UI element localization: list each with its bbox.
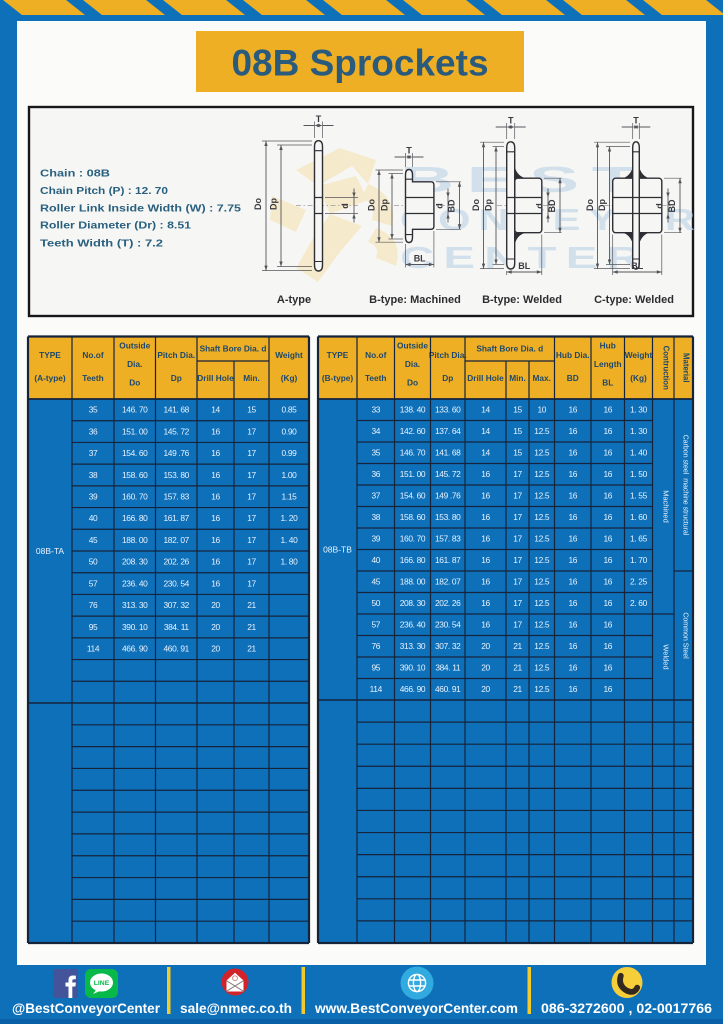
svg-text:36: 36 (89, 426, 98, 436)
svg-text:d: d (340, 203, 350, 209)
svg-text:Teeth: Teeth (365, 373, 387, 383)
svg-text:38: 38 (371, 512, 380, 522)
svg-text:Roller Diameter (Dr) : 8.51: Roller Diameter (Dr) : 8.51 (40, 221, 191, 232)
svg-text:Min.: Min. (243, 373, 260, 383)
svg-text:12.5: 12.5 (534, 684, 550, 694)
svg-text:Common Steel: Common Steel (682, 612, 689, 659)
svg-text:166. 80: 166. 80 (400, 555, 426, 565)
svg-text:www.BestConveyorCenter.com: www.BestConveyorCenter.com (314, 1000, 518, 1016)
svg-text:Hub Dia.: Hub Dia. (556, 350, 590, 360)
svg-text:14: 14 (481, 405, 490, 415)
svg-text:149 .76: 149 .76 (435, 491, 461, 501)
svg-text:16: 16 (481, 598, 490, 608)
svg-text:16: 16 (568, 598, 577, 608)
svg-text:Material: Material (682, 353, 691, 382)
svg-text:466. 90: 466. 90 (122, 644, 148, 654)
svg-text:16: 16 (211, 557, 220, 567)
svg-text:16: 16 (603, 684, 612, 694)
svg-text:Chain : 08B: Chain : 08B (40, 169, 110, 180)
svg-text:230. 54: 230. 54 (164, 578, 190, 588)
svg-text:17: 17 (247, 470, 256, 480)
svg-text:154. 60: 154. 60 (122, 448, 148, 458)
svg-text:Hub: Hub (600, 341, 616, 351)
svg-text:390. 10: 390. 10 (122, 622, 148, 632)
svg-text:34: 34 (371, 426, 380, 436)
svg-text:20: 20 (481, 641, 490, 651)
svg-text:Dp: Dp (483, 199, 493, 211)
svg-text:Dia.: Dia. (405, 359, 420, 369)
svg-text:12.5: 12.5 (534, 448, 550, 458)
svg-text:Min.: Min. (509, 373, 526, 383)
svg-text:Shaft Bore Dia. d: Shaft Bore Dia. d (476, 344, 543, 354)
svg-text:B-type: Welded: B-type: Welded (482, 294, 562, 306)
svg-text:16: 16 (568, 534, 577, 544)
svg-text:16: 16 (568, 491, 577, 501)
svg-text:154. 60: 154. 60 (400, 491, 426, 501)
svg-text:14: 14 (211, 405, 220, 415)
svg-text:12.5: 12.5 (534, 598, 550, 608)
svg-text:145. 72: 145. 72 (164, 426, 190, 436)
svg-text:Drill Hole: Drill Hole (467, 373, 504, 383)
svg-text:114: 114 (87, 644, 100, 654)
svg-text:16: 16 (603, 598, 612, 608)
svg-text:12.5: 12.5 (534, 491, 550, 501)
svg-text:12.5: 12.5 (534, 641, 550, 651)
svg-text:16: 16 (568, 448, 577, 458)
svg-text:BL: BL (631, 261, 643, 271)
svg-text:157. 83: 157. 83 (435, 534, 461, 544)
svg-text:Machined: Machined (661, 490, 670, 523)
svg-text:45: 45 (89, 535, 98, 545)
svg-text:1. 40: 1. 40 (630, 448, 648, 458)
svg-text:16: 16 (603, 512, 612, 522)
svg-text:16: 16 (603, 555, 612, 565)
svg-text:313. 30: 313. 30 (400, 641, 426, 651)
svg-text:76: 76 (89, 600, 98, 610)
svg-text:160. 70: 160. 70 (400, 534, 426, 544)
svg-text:16: 16 (603, 469, 612, 479)
svg-text:12.5: 12.5 (534, 620, 550, 630)
svg-text:Pitch Dia.: Pitch Dia. (429, 350, 467, 360)
svg-text:Welded: Welded (661, 644, 670, 669)
svg-text:16: 16 (603, 620, 612, 630)
svg-text:188. 00: 188. 00 (400, 577, 426, 587)
svg-text:TYPE: TYPE (327, 350, 349, 360)
svg-text:16: 16 (211, 426, 220, 436)
svg-text:LINE: LINE (94, 980, 110, 987)
svg-text:08B-TA: 08B-TA (36, 546, 65, 556)
svg-text:16: 16 (568, 405, 577, 415)
svg-text:0.85: 0.85 (282, 405, 298, 415)
svg-text:Chain Pitch (P) : 12. 70: Chain Pitch (P) : 12. 70 (40, 186, 168, 197)
svg-text:95: 95 (371, 663, 380, 673)
svg-text:12.5: 12.5 (534, 663, 550, 673)
svg-text:15: 15 (513, 405, 522, 415)
svg-text:No.of: No.of (365, 350, 386, 360)
svg-text:16: 16 (211, 513, 220, 523)
svg-text:12.5: 12.5 (534, 469, 550, 479)
svg-text:307. 32: 307. 32 (164, 600, 190, 610)
svg-text:57: 57 (89, 578, 98, 588)
svg-text:208. 30: 208. 30 (122, 557, 148, 567)
svg-text:1. 30: 1. 30 (630, 405, 648, 415)
svg-text:16: 16 (211, 578, 220, 588)
svg-text:BL: BL (518, 261, 530, 271)
svg-text:Dp: Dp (442, 373, 453, 383)
svg-text:15: 15 (513, 426, 522, 436)
svg-text:B-type: Machined: B-type: Machined (369, 294, 461, 306)
svg-text:182. 07: 182. 07 (435, 577, 461, 587)
svg-text:17: 17 (247, 426, 256, 436)
svg-text:12.5: 12.5 (534, 512, 550, 522)
svg-text:16: 16 (603, 663, 612, 673)
svg-text:16: 16 (211, 448, 220, 458)
svg-text:95: 95 (89, 622, 98, 632)
svg-text:No.of: No.of (82, 350, 103, 360)
svg-text:BD: BD (567, 373, 579, 383)
svg-text:TYPE: TYPE (39, 350, 61, 360)
svg-text:0.99: 0.99 (282, 448, 298, 458)
svg-text:35: 35 (89, 405, 98, 415)
svg-text:33: 33 (371, 405, 380, 415)
svg-text:086-3272600 , 02-0017766: 086-3272600 , 02-0017766 (541, 1001, 713, 1016)
svg-text:14: 14 (481, 448, 490, 458)
svg-text:16: 16 (568, 469, 577, 479)
svg-text:Drill Hole: Drill Hole (197, 373, 234, 383)
svg-text:157. 83: 157. 83 (164, 492, 190, 502)
svg-text:(Kg): (Kg) (281, 373, 298, 383)
svg-text:21: 21 (247, 622, 256, 632)
svg-text:1. 60: 1. 60 (630, 512, 648, 522)
svg-text:Roller Link Inside Width (W) :: Roller Link Inside Width (W) : 7.75 (40, 203, 241, 214)
svg-text:16: 16 (568, 555, 577, 565)
svg-text:Outside: Outside (119, 341, 150, 351)
svg-text:14: 14 (481, 426, 490, 436)
svg-text:16: 16 (481, 469, 490, 479)
svg-text:Dp: Dp (268, 198, 278, 210)
svg-text:17: 17 (247, 557, 256, 567)
svg-text:38: 38 (89, 470, 98, 480)
svg-text:16: 16 (481, 577, 490, 587)
svg-text:16: 16 (481, 491, 490, 501)
svg-text:133. 60: 133. 60 (435, 405, 461, 415)
svg-text:BD: BD (547, 199, 557, 212)
svg-text:153. 80: 153. 80 (435, 512, 461, 522)
svg-text:36: 36 (371, 469, 380, 479)
svg-text:188. 00: 188. 00 (122, 535, 148, 545)
svg-text:37: 37 (89, 448, 98, 458)
svg-text:313. 30: 313. 30 (122, 600, 148, 610)
svg-text:d: d (435, 203, 445, 209)
svg-text:466. 90: 466. 90 (400, 684, 426, 694)
svg-text:17: 17 (247, 492, 256, 502)
svg-text:Outside: Outside (397, 341, 428, 351)
svg-text:Do: Do (585, 199, 595, 211)
svg-text:161. 87: 161. 87 (435, 555, 461, 565)
svg-text:16: 16 (211, 470, 220, 480)
svg-text:1. 80: 1. 80 (281, 557, 299, 567)
svg-text:12.5: 12.5 (534, 555, 550, 565)
svg-text:21: 21 (513, 641, 522, 651)
svg-text:16: 16 (603, 491, 612, 501)
svg-text:16: 16 (603, 534, 612, 544)
svg-text:21: 21 (513, 684, 522, 694)
svg-text:21: 21 (247, 600, 256, 610)
svg-text:384. 11: 384. 11 (435, 663, 461, 673)
svg-text:16: 16 (568, 577, 577, 587)
svg-text:0.90: 0.90 (282, 426, 298, 436)
svg-text:BL: BL (414, 254, 426, 264)
svg-text:Do: Do (129, 378, 140, 388)
svg-text:08B-TB: 08B-TB (323, 545, 352, 555)
svg-text:(A-type): (A-type) (34, 373, 66, 383)
svg-text:16: 16 (603, 405, 612, 415)
svg-text:307. 32: 307. 32 (435, 641, 461, 651)
svg-text:16: 16 (211, 535, 220, 545)
svg-text:141. 68: 141. 68 (164, 405, 190, 415)
svg-text:17: 17 (513, 469, 522, 479)
svg-text:145. 72: 145. 72 (435, 469, 461, 479)
svg-text:16: 16 (568, 512, 577, 522)
svg-text:1.15: 1.15 (282, 492, 298, 502)
svg-text:Do: Do (366, 199, 376, 211)
svg-text:460. 91: 460. 91 (164, 644, 190, 654)
svg-text:20: 20 (481, 684, 490, 694)
svg-text:d: d (655, 203, 665, 209)
svg-text:50: 50 (371, 598, 380, 608)
svg-text:17: 17 (513, 534, 522, 544)
svg-text:d: d (535, 203, 545, 209)
svg-text:236. 40: 236. 40 (122, 578, 148, 588)
svg-text:15: 15 (247, 405, 256, 415)
svg-text:12.5: 12.5 (534, 534, 550, 544)
svg-text:39: 39 (89, 492, 98, 502)
svg-text:141. 68: 141. 68 (435, 448, 461, 458)
svg-text:(Kg): (Kg) (630, 373, 647, 383)
svg-text:17: 17 (513, 598, 522, 608)
svg-text:16: 16 (568, 426, 577, 436)
svg-text:153. 80: 153. 80 (164, 470, 190, 480)
svg-text:236. 40: 236. 40 (400, 620, 426, 630)
svg-text:17: 17 (513, 491, 522, 501)
svg-text:202. 26: 202. 26 (435, 598, 461, 608)
svg-text:17: 17 (513, 620, 522, 630)
svg-text:35: 35 (371, 448, 380, 458)
svg-text:1. 70: 1. 70 (630, 555, 648, 565)
svg-text:37: 37 (371, 491, 380, 501)
svg-text:21: 21 (513, 663, 522, 673)
svg-text:1. 50: 1. 50 (630, 469, 648, 479)
svg-text:Carbon steel machine structur: Carbon steel machine structural (682, 435, 689, 536)
svg-text:16: 16 (568, 641, 577, 651)
svg-text:17: 17 (513, 512, 522, 522)
svg-text:151. 00: 151. 00 (122, 426, 148, 436)
svg-text:146. 70: 146. 70 (122, 405, 148, 415)
svg-text:460. 91: 460. 91 (435, 684, 461, 694)
svg-text:138. 40: 138. 40 (400, 405, 426, 415)
svg-text:BD: BD (446, 199, 456, 212)
svg-text:Do: Do (471, 199, 481, 211)
svg-text:16: 16 (603, 426, 612, 436)
svg-text:1. 55: 1. 55 (630, 491, 648, 501)
svg-text:1. 20: 1. 20 (281, 513, 299, 523)
svg-text:20: 20 (211, 622, 220, 632)
svg-text:2. 25: 2. 25 (630, 577, 648, 587)
svg-text:384. 11: 384. 11 (164, 622, 190, 632)
svg-text:T: T (508, 116, 514, 126)
svg-text:17: 17 (247, 578, 256, 588)
svg-text:sale@nmec.co.th: sale@nmec.co.th (180, 1001, 292, 1016)
svg-text:16: 16 (568, 620, 577, 630)
svg-text:40: 40 (371, 555, 380, 565)
svg-text:C-type: Welded: C-type: Welded (594, 294, 674, 306)
svg-text:16: 16 (211, 492, 220, 502)
svg-text:1. 65: 1. 65 (630, 534, 648, 544)
svg-text:161. 87: 161. 87 (164, 513, 190, 523)
svg-text:16: 16 (568, 684, 577, 694)
svg-text:08B Sprockets: 08B Sprockets (231, 43, 488, 84)
svg-text:17: 17 (247, 448, 256, 458)
svg-text:114: 114 (370, 684, 383, 694)
svg-text:T: T (406, 146, 412, 156)
svg-text:16: 16 (603, 641, 612, 651)
svg-text:BL: BL (602, 378, 613, 388)
svg-text:40: 40 (89, 513, 98, 523)
svg-text:Contruction: Contruction (661, 346, 670, 390)
svg-text:146. 70: 146. 70 (400, 448, 426, 458)
svg-text:45: 45 (371, 577, 380, 587)
svg-text:Length: Length (594, 359, 622, 369)
svg-text:21: 21 (247, 644, 256, 654)
svg-text:16: 16 (603, 577, 612, 587)
svg-text:10: 10 (537, 405, 546, 415)
svg-text:50: 50 (89, 557, 98, 567)
svg-text:12.5: 12.5 (534, 577, 550, 587)
svg-text:20: 20 (481, 663, 490, 673)
svg-text:17: 17 (513, 555, 522, 565)
svg-text:16: 16 (481, 512, 490, 522)
svg-text:Teeth Width (T) : 7.2: Teeth Width (T) : 7.2 (40, 238, 163, 249)
svg-text:158. 60: 158. 60 (122, 470, 148, 480)
svg-text:230. 54: 230. 54 (435, 620, 461, 630)
svg-text:T: T (316, 114, 322, 124)
svg-text:Max.: Max. (533, 373, 551, 383)
svg-text:Weight: Weight (275, 350, 303, 360)
svg-text:160. 70: 160. 70 (122, 492, 148, 502)
svg-text:Teeth: Teeth (82, 373, 104, 383)
svg-text:Dp: Dp (380, 199, 390, 211)
svg-text:Weight: Weight (625, 350, 653, 360)
svg-text:12.5: 12.5 (534, 426, 550, 436)
svg-text:17: 17 (513, 577, 522, 587)
svg-text:149 .76: 149 .76 (164, 448, 190, 458)
svg-text:T: T (633, 116, 639, 126)
svg-text:17: 17 (247, 513, 256, 523)
svg-text:BD: BD (667, 199, 677, 212)
svg-text:208. 30: 208. 30 (400, 598, 426, 608)
svg-text:20: 20 (211, 644, 220, 654)
svg-text:Dp: Dp (171, 373, 182, 383)
svg-text:16: 16 (568, 663, 577, 673)
svg-text:390. 10: 390. 10 (400, 663, 426, 673)
svg-text:137. 64: 137. 64 (435, 426, 461, 436)
svg-text:Dia.: Dia. (127, 359, 142, 369)
svg-text:Dp: Dp (597, 199, 607, 211)
svg-text:2. 60: 2. 60 (630, 598, 648, 608)
svg-text:20: 20 (211, 600, 220, 610)
svg-text:1.00: 1.00 (282, 470, 298, 480)
svg-text:Shaft Bore Dia. d: Shaft Bore Dia. d (200, 344, 267, 354)
svg-text:76: 76 (371, 641, 380, 651)
svg-text:16: 16 (603, 448, 612, 458)
svg-text:17: 17 (247, 535, 256, 545)
svg-text:166. 80: 166. 80 (122, 513, 148, 523)
svg-text:1. 30: 1. 30 (630, 426, 648, 436)
svg-text:1. 40: 1. 40 (281, 535, 299, 545)
svg-text:Do: Do (253, 198, 263, 210)
svg-text:Pitch Dia.: Pitch Dia. (157, 350, 195, 360)
svg-text:182. 07: 182. 07 (164, 535, 190, 545)
svg-text:142. 60: 142. 60 (400, 426, 426, 436)
svg-text:57: 57 (371, 620, 380, 630)
svg-text:16: 16 (481, 555, 490, 565)
svg-text:39: 39 (371, 534, 380, 544)
svg-text:16: 16 (481, 620, 490, 630)
svg-text:Do: Do (407, 378, 418, 388)
svg-text:16: 16 (481, 534, 490, 544)
svg-text:151. 00: 151. 00 (400, 469, 426, 479)
svg-text:15: 15 (513, 448, 522, 458)
svg-text:158. 60: 158. 60 (400, 512, 426, 522)
svg-text:@BestConveyorCenter: @BestConveyorCenter (12, 1000, 161, 1016)
svg-text:202. 26: 202. 26 (164, 557, 190, 567)
svg-text:A-type: A-type (277, 294, 311, 306)
svg-text:(B-type): (B-type) (322, 373, 354, 383)
